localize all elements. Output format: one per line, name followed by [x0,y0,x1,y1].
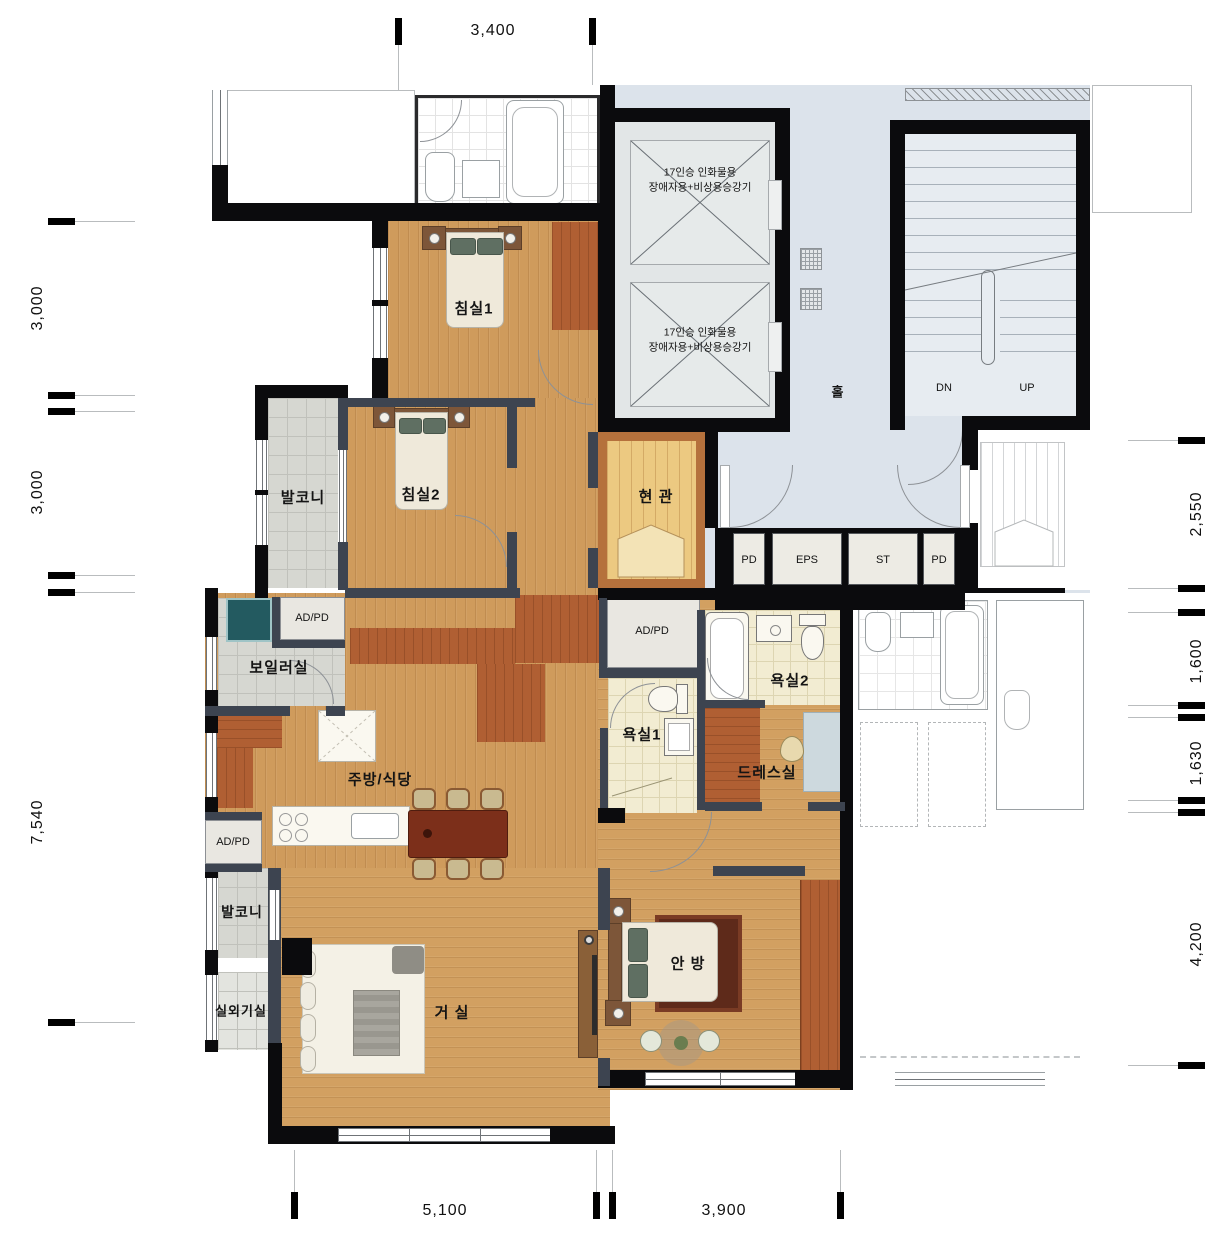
neighbor-entry-wall-a [962,430,978,470]
adjacent-toilet-icon [425,152,455,202]
kitchen-sink-icon [351,813,399,839]
balcony-lower-label: 발코니 [221,902,263,922]
bathroom1-label: 욕실1 [623,724,662,745]
dim-ext-line [1128,612,1178,613]
dim-tick [609,1192,616,1219]
stair-steps-right [1000,300,1076,362]
dining-chair [480,858,504,880]
sofa-cushion-icon [300,1014,316,1042]
dim-ext-line [75,575,135,576]
kitchen-island [318,710,376,762]
iwall-adpd3-left [599,598,607,676]
iwall-bed2-balcony-a [338,398,348,450]
kitchen-accent-left2 [217,748,253,808]
dim-ext-line [1128,588,1178,589]
dining-chair [446,858,470,880]
bed1-nightstand [422,226,446,250]
dining-chair [446,788,470,810]
bed2-balcony-door [339,450,347,542]
iwall-living-master-b [598,1058,610,1086]
dim-tick [593,1192,600,1219]
dim-ext-line [294,1150,295,1192]
stair-break-line [905,245,1076,295]
dim-tick [1178,797,1205,804]
outdoor-unit-label: 실외기실 [215,1001,267,1020]
dress-floor-accent [705,708,760,808]
elevator-wall-top [600,108,790,122]
dim-ext-line [75,221,135,222]
stair-wall-bottom [962,416,1090,430]
pillow-icon [450,238,476,255]
pillow-icon [628,928,648,962]
bed2-nightstand [373,406,395,428]
iwall-boiler-bottom-a [205,706,290,716]
adjacent-sink-icon [462,160,500,198]
wall-topleft-stub [212,165,228,221]
dim-tick [1178,609,1205,616]
dim-ext-line [1128,717,1178,718]
bathroom2-label: 욕실2 [771,670,810,691]
neighbor-closet-dashed [928,722,986,827]
speaker-icon [584,935,594,945]
iwall-bath2-dress [705,700,765,708]
wall-balcony-left-a [255,385,268,440]
tv-icon [592,955,597,1035]
wall-bed1-left-c [372,358,388,400]
boiler-window [206,637,217,690]
master-window [645,1072,795,1086]
wall-balcony-top [255,385,348,398]
dim-ext-line [1128,1065,1178,1066]
elevator-x-icon [631,141,769,264]
kitchen-counter [272,806,410,846]
stair-up-label: UP [1019,382,1034,394]
dim-ext-line [1128,705,1178,706]
wall-left-f [205,1040,218,1052]
master-nightstand [605,1000,631,1026]
elevator-wall-bottom [600,418,790,432]
stair-wall-left [890,120,905,430]
dim-left-7540: 7,540 [29,799,47,844]
sofa-cushion-icon [300,982,316,1010]
balcony-window [256,440,267,490]
dim-right-4200: 4,200 [1188,921,1206,966]
iwall-entrance-left-b [588,548,598,588]
bath1-shower-lines [612,756,672,796]
iwall-master-top [713,866,805,876]
wall-entrance-bottom [598,588,715,600]
unit-door-leaf-right [960,465,970,528]
dim-tick [1178,714,1205,721]
dim-right-2550: 2,550 [1188,491,1206,536]
neighbor-sink-icon [900,612,934,638]
dim-top-3400: 3,400 [470,22,515,40]
elevator-wall-right [775,122,790,432]
floor-plan: 17인승 인화물용장애자용+비상용승강기 17인승 인화물용장애자용+비상용승강… [0,0,1232,1244]
balcony-window [256,495,267,545]
wall-bath1-stub [598,808,625,823]
adpd-boiler-label: AD/PD [295,612,329,624]
dim-bottom-5100: 5,100 [422,1202,467,1220]
master-bedroom-label: 안 방 [671,953,706,974]
living-room-label: 거 실 [435,1002,470,1023]
sofa-chaise [392,946,424,974]
wall-top [212,203,602,221]
cooktop-burner-icon [279,829,292,842]
wall-left-e [205,950,218,975]
wall-entrance-right [705,432,718,528]
coffee-table [353,990,400,1056]
pillow-icon [477,238,503,255]
dim-left-3000a: 3,000 [29,285,47,330]
dim-tick [48,408,75,415]
dim-right-1600: 1,600 [1188,638,1206,683]
iwall-living-master-a [598,868,610,930]
adjacent-bathtub-icon [506,100,564,204]
dim-ext-line [596,1150,597,1192]
dim-tick [589,18,596,45]
dim-tick [1178,437,1205,444]
kitchen-window [206,733,217,797]
bedroom2-label: 침실2 [402,484,441,505]
dim-ext-line [592,45,593,85]
dim-tick [48,392,75,399]
shaft-eps-label: EPS [796,554,818,566]
adpd-kitchen-label: AD/PD [216,836,250,848]
kitchen-accent-stub [477,664,545,742]
iwall-dress-bottom-b [808,802,845,811]
dress-wardrobe [803,712,845,792]
pillow-icon [423,418,446,434]
dim-tick [1178,809,1205,816]
iwall-adpd2-top [205,812,262,820]
neighbor-dashed-line [860,1056,1080,1058]
dim-bottom-3900: 3,900 [701,1202,746,1220]
boiler-room-label: 보일러실 [249,657,308,678]
stair-dn-label: DN [936,382,952,394]
dining-chair [412,788,436,810]
iwall-bath1-left [600,728,608,808]
dim-ext-line [398,45,399,90]
shaft-st-label: ST [876,554,890,566]
dim-tick [48,589,75,596]
adjacent-unit-top-left [212,90,415,207]
unit-door-leaf-left [720,465,730,528]
wall-bed1-left-a [372,221,388,248]
iwall-adpd1-bottom [280,640,345,648]
dim-tick [48,572,75,579]
kitchen-accent-bar [350,628,515,664]
dim-ext-line [75,411,135,412]
kitchen-label: 주방/식당 [348,769,412,790]
dim-ext-line [75,592,135,593]
dining-chair [412,858,436,880]
bath2-sink-icon [756,615,792,642]
iwall-bed1-bottom [345,398,535,407]
iwall-entrance-left-a [588,432,598,488]
dining-chair [480,788,504,810]
elevator-2-label: 17인승 인화물용장애자용+비상용승강기 [649,325,752,354]
iwall-bed2-balcony-b [338,542,348,590]
bath1-sink-icon [664,718,694,756]
entrance-step-pentagon [618,525,684,577]
adpd-hall-label: AD/PD [635,625,669,637]
neighbor-bathtub-icon [940,605,984,705]
neighbor-window [895,1072,1045,1086]
dress-room-label: 드레스실 [737,762,796,783]
elevator-door-1 [768,180,782,230]
adjacent-unit-top-right-outline [1092,85,1192,213]
hall-vent-grille-icon [800,248,822,270]
wall-between-units [840,593,853,1090]
wall-left-a [205,588,218,637]
pillow-icon [399,418,422,434]
stair-wall-top [890,120,1090,134]
cooktop-burner-icon [295,813,308,826]
elevator-door-2 [768,322,782,372]
iwall-adpd2-bottom [205,864,262,872]
living-window [338,1128,550,1142]
neighbor-toilet-icon [865,612,891,652]
iwall-bath-divider [697,610,705,810]
dim-tick [48,1019,75,1026]
iwall-bed2-right-b [507,532,517,590]
iwall-adpd1-left [272,597,280,648]
dim-ext-line [75,1022,135,1023]
elevator-1-label: 17인승 인화물용장애자용+비상용승강기 [649,165,752,194]
adjacent-window [212,90,228,165]
dining-table [408,810,508,858]
bedroom1-label: 침실1 [455,298,494,319]
kitchen-accent-corner [515,595,600,663]
iwall-adpd3-bottom [599,668,700,678]
neighbor-closet-dashed [860,722,918,827]
elevator-car-1 [630,140,770,265]
dim-left-3000b: 3,000 [29,469,47,514]
stair-steps-left [905,300,981,362]
dim-right-1630: 1,630 [1188,740,1206,785]
dim-tick [1178,1062,1205,1069]
boiler-tank [226,598,272,642]
iwall-dress-bottom-a [705,802,762,811]
master-chair-icon [640,1030,662,1052]
dim-ext-line [75,395,135,396]
dim-tick [1178,585,1205,592]
stair-wall-right [1076,120,1090,430]
bed1-window [373,248,387,300]
iwall-kitchen-top [345,588,520,598]
master-chair-icon [698,1030,720,1052]
bath2-toilet-bowl-icon [801,626,824,660]
balcony-lower-window [206,878,217,950]
dim-ext-line [1128,440,1178,441]
dim-tick [48,218,75,225]
bedroom1-closet [552,222,600,330]
sofa-cushion-icon [300,1046,316,1072]
balcony-door-window [269,890,280,940]
bed2-nightstand [448,406,470,428]
wall-balcony-jog [282,938,312,975]
pillow-icon [628,964,648,998]
shaft-pd-right-label: PD [931,554,946,566]
dim-tick [1178,702,1205,709]
shaft-pd-left-label: PD [741,554,756,566]
iwall-boiler-bottom-b [326,706,345,716]
dim-tick [395,18,402,45]
wall-unit-right-top [598,203,615,432]
dim-tick [291,1192,298,1219]
cooktop-burner-icon [279,813,292,826]
hall-label: 홀 [832,382,845,401]
dress-mirror-icon [780,736,804,762]
entrance-label: 현 관 [639,486,674,507]
dim-ext-line [1128,800,1178,801]
bath2-toilet-icon [799,614,826,626]
dim-ext-line [612,1150,613,1192]
neighbor-toilet2-icon [1004,690,1030,730]
wall-balcony-left-c [255,545,268,598]
stair-hatch-wall [905,88,1090,101]
master-plant-icon [674,1036,688,1050]
dim-ext-line [840,1150,841,1192]
neighbor-entry-pentagon [995,520,1053,566]
cooktop-burner-icon [295,829,308,842]
dim-tick [837,1192,844,1219]
kitchen-accent-left [217,712,282,748]
balcony-upper-label: 발코니 [281,487,325,508]
bed1-window [373,306,387,358]
hall-vent-grille-icon [800,288,822,310]
iwall-bed2-right-a [507,407,517,468]
dim-ext-line [1128,812,1178,813]
